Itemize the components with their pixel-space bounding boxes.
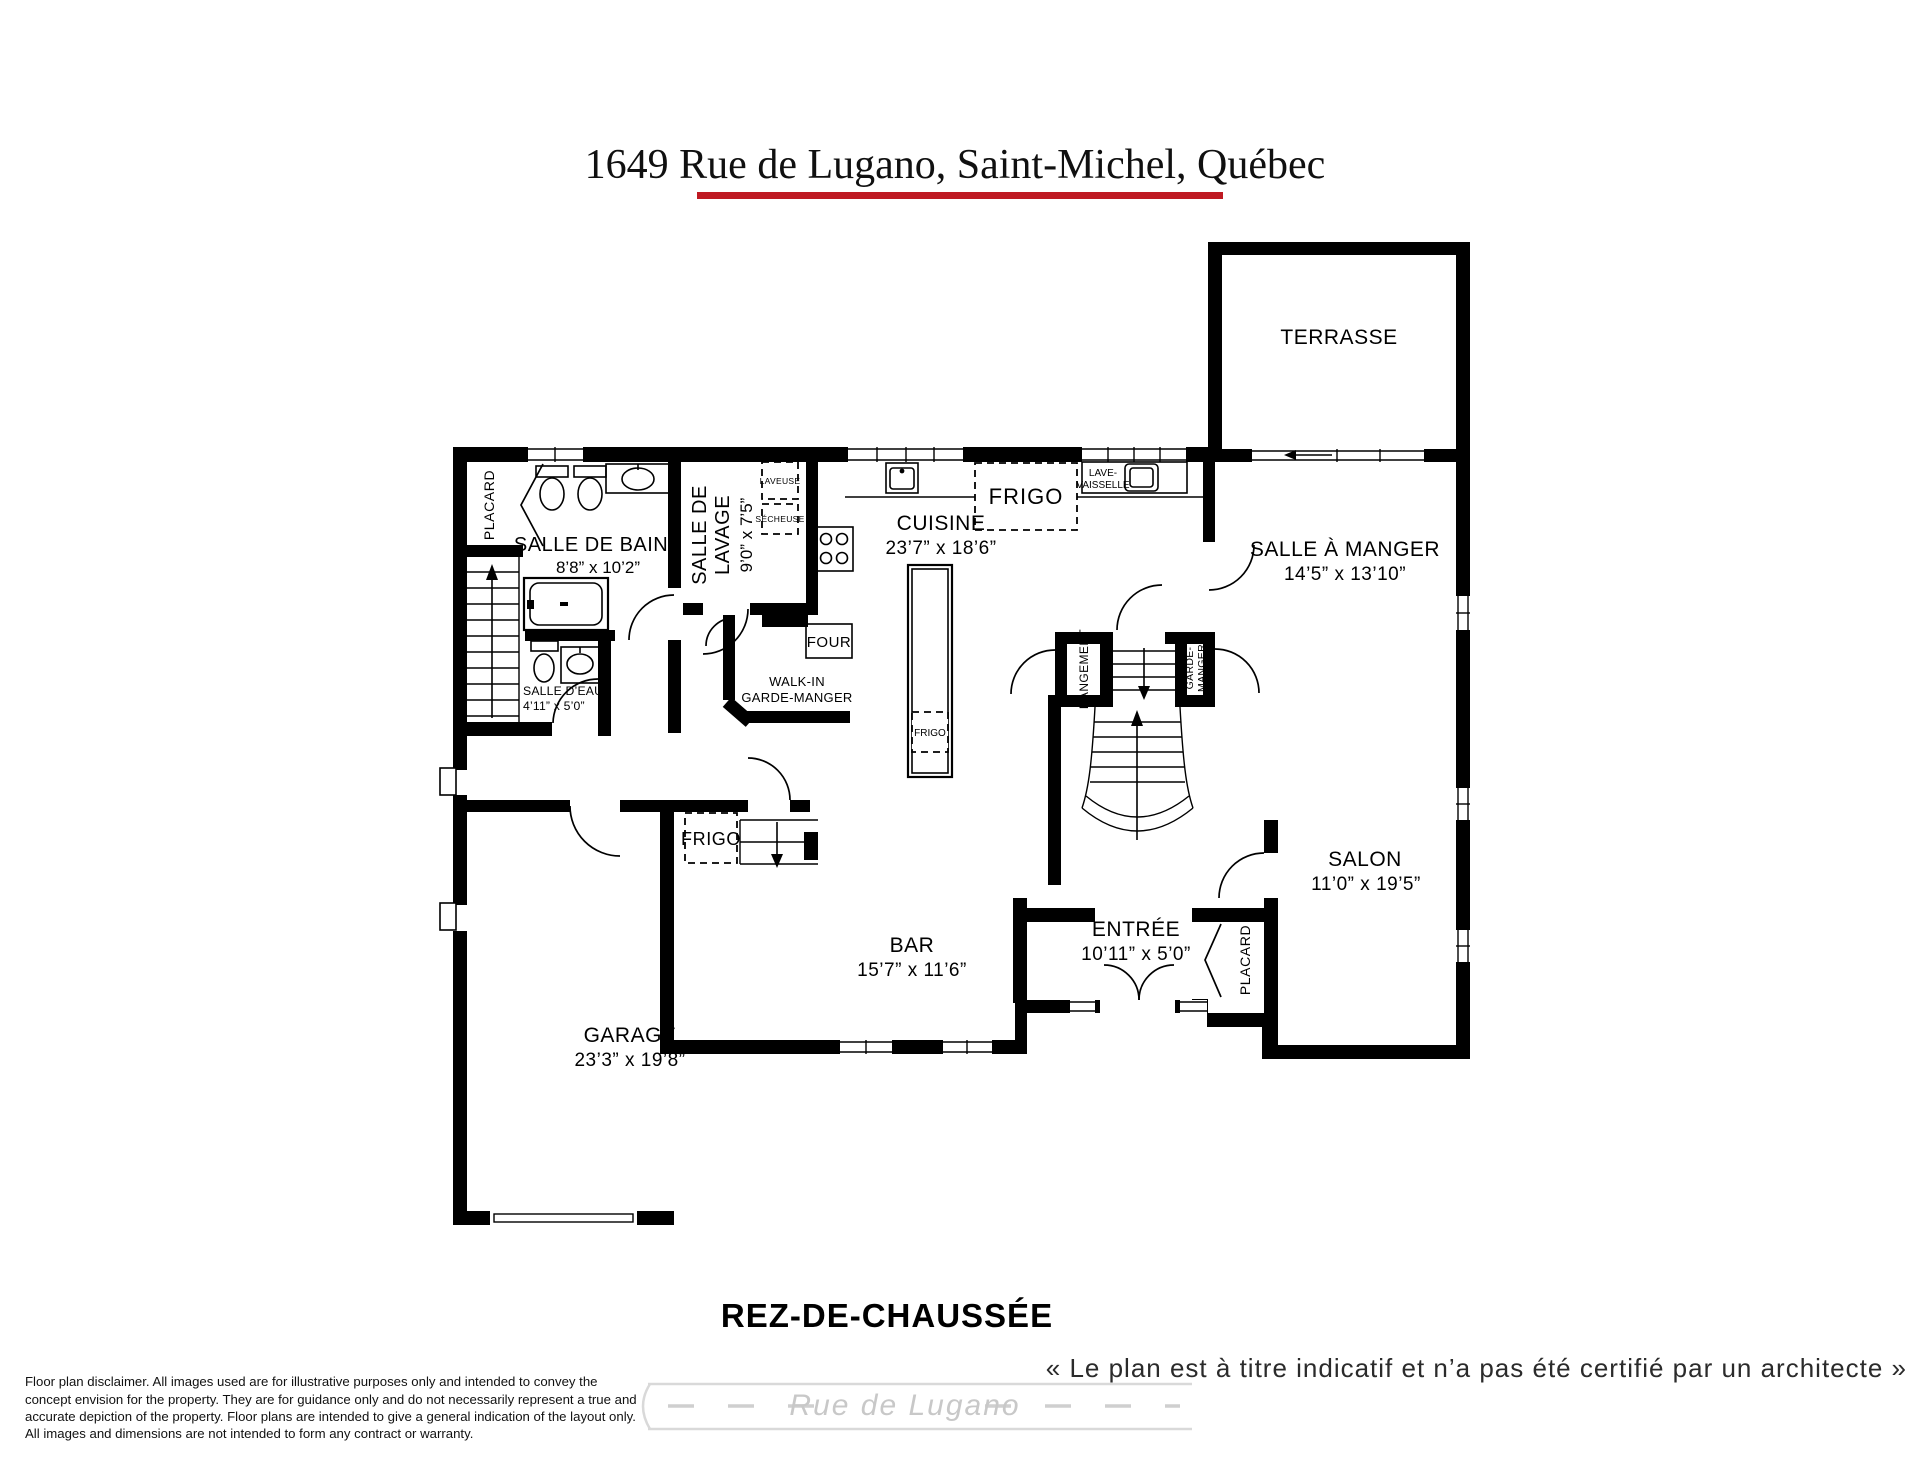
window-entree-left bbox=[1070, 1000, 1095, 1013]
window-dining bbox=[1456, 596, 1470, 630]
window-kitchen-2 bbox=[1082, 447, 1186, 462]
label-laveuse: LAVEUSE bbox=[760, 476, 801, 486]
stairs-curved-lower bbox=[1082, 707, 1193, 840]
walls bbox=[453, 242, 1470, 1225]
label-garage: GARAGE bbox=[584, 1024, 677, 1047]
label-salle-de-bains: SALLE DE BAINS bbox=[514, 534, 682, 556]
label-lave-vaisselle-1: LAVE- bbox=[1089, 468, 1117, 479]
label-bar: BAR bbox=[890, 934, 935, 957]
window-salon-2 bbox=[1456, 930, 1470, 962]
garage-door bbox=[490, 1211, 637, 1225]
label-frigo-ilot: FRIGO bbox=[914, 728, 946, 739]
dims-entree: 10’11” x 5’0” bbox=[1081, 944, 1191, 965]
label-secheuse: SÉCHEUSE bbox=[755, 514, 804, 524]
window-entree-right bbox=[1180, 1000, 1207, 1013]
kitchen-island bbox=[908, 565, 952, 777]
stairs-curved-up-arrow-icon bbox=[1131, 710, 1143, 726]
certification-quote: « Le plan est à titre indicatif et n’a p… bbox=[1046, 1353, 1907, 1383]
window-bar-2 bbox=[943, 1040, 992, 1054]
dims-cuisine: 23’7” x 18’6” bbox=[885, 538, 996, 559]
dims-salle-de-bains: 8’8” x 10’2” bbox=[556, 558, 640, 577]
disclaimer-line-2: concept envision for the property. They … bbox=[25, 1392, 637, 1407]
left-wall-notch-1 bbox=[440, 768, 456, 795]
door-arc-bar-hall bbox=[748, 758, 790, 800]
sink-icon bbox=[606, 464, 670, 493]
dims-salle-a-manger: 14’5” x 13’10” bbox=[1284, 564, 1406, 585]
patio-door bbox=[1252, 449, 1424, 462]
label-salle-de-lavage-2: LAVAGE bbox=[712, 495, 734, 575]
dims-salle-de-lavage: 9’0” x 7’5” bbox=[737, 497, 756, 572]
dims-salon: 11’0” x 19’5” bbox=[1311, 874, 1421, 895]
disclaimer-line-3: accurate depiction of the property. Floo… bbox=[25, 1409, 636, 1424]
dims-bar: 15’7” x 11’6” bbox=[857, 960, 967, 981]
label-walkin-1: WALK-IN bbox=[769, 674, 825, 689]
label-four: FOUR bbox=[807, 634, 852, 651]
label-garde-manger-1: GARDE- bbox=[1184, 646, 1196, 689]
door-arc-stairs-top bbox=[1117, 585, 1162, 630]
title-underline bbox=[697, 192, 1223, 199]
dims-salle-deau: 4’11” x 5’0” bbox=[523, 699, 585, 713]
label-cuisine: CUISINE bbox=[897, 512, 986, 535]
label-entree: ENTRÉE bbox=[1092, 918, 1180, 941]
sink-icon bbox=[561, 647, 599, 683]
label-salle-a-manger: SALLE À MANGER bbox=[1250, 538, 1440, 561]
toilet-icon bbox=[574, 466, 606, 510]
stove-icon bbox=[816, 527, 853, 571]
window-bathroom bbox=[528, 447, 583, 462]
kitchen-sink-icon bbox=[886, 463, 918, 493]
title-block: 1649 Rue de Lugano, Saint-Michel, Québec bbox=[585, 142, 1326, 199]
folding-door-placard-entree bbox=[1205, 924, 1221, 997]
window-kitchen-1 bbox=[848, 447, 963, 462]
door-arc-rangement bbox=[1011, 650, 1055, 694]
label-placard-entree: PLACARD bbox=[1237, 925, 1253, 995]
label-terrasse: TERRASSE bbox=[1280, 326, 1397, 349]
door-arc-garde-manger bbox=[1215, 649, 1259, 693]
toilet-icon bbox=[536, 466, 568, 510]
street-name-watermark: Rue de Lugano bbox=[789, 1389, 1020, 1422]
disclaimer-line-4: All images and dimensions are not intend… bbox=[25, 1426, 473, 1441]
stairs-down-arrow-icon bbox=[1138, 686, 1150, 700]
left-wall-notch-2 bbox=[440, 903, 456, 930]
label-salle-de-lavage-1: SALLE DE bbox=[689, 485, 711, 585]
stairs-core-down bbox=[1113, 648, 1175, 700]
garage-steps-down-arrow-icon bbox=[771, 854, 783, 868]
label-placard-haut: PLACARD bbox=[481, 470, 497, 540]
street-graphic: Rue de Lugano bbox=[643, 1384, 1192, 1429]
toilet-icon bbox=[531, 641, 558, 682]
page-title: 1649 Rue de Lugano, Saint-Michel, Québec bbox=[585, 142, 1326, 188]
disclaimer-line-1: Floor plan disclaimer. All images used a… bbox=[25, 1374, 598, 1389]
window-bar-1 bbox=[840, 1040, 892, 1054]
label-lave-vaisselle-2: VAISSELLE bbox=[1076, 480, 1130, 491]
label-frigo-cuisine: FRIGO bbox=[989, 484, 1064, 509]
bathtub-icon bbox=[524, 578, 608, 630]
stairs-main-upper bbox=[467, 557, 519, 722]
door-arc-dining bbox=[1209, 545, 1254, 590]
floor-level-label: REZ-DE-CHAUSSÉE bbox=[721, 1297, 1053, 1334]
door-arc-salon bbox=[1219, 853, 1264, 898]
window-salon-1 bbox=[1456, 788, 1470, 820]
door-arc-garage bbox=[570, 806, 620, 856]
label-salon: SALON bbox=[1328, 848, 1402, 871]
floor-plan-page: 1649 Rue de Lugano, Saint-Michel, Québec bbox=[0, 0, 1920, 1483]
door-arc-entree-left bbox=[1104, 965, 1139, 1000]
disclaimer-block: Floor plan disclaimer. All images used a… bbox=[25, 1374, 637, 1441]
label-rangement: RANGEMENT bbox=[1077, 629, 1091, 710]
dims-garage: 23’3” x 19’8” bbox=[574, 1050, 685, 1071]
label-garde-manger-2: MANGER bbox=[1196, 644, 1208, 692]
room-labels: TERRASSE SALLE DE BAINS 8’8” x 10’2” SAL… bbox=[514, 326, 1440, 1071]
door-arc-entree-right bbox=[1139, 965, 1174, 1000]
label-salle-deau: SALLE D’EAU bbox=[523, 684, 603, 698]
label-frigo-garage: FRIGO bbox=[681, 829, 741, 849]
label-walkin-2: GARDE-MANGER bbox=[741, 690, 852, 705]
